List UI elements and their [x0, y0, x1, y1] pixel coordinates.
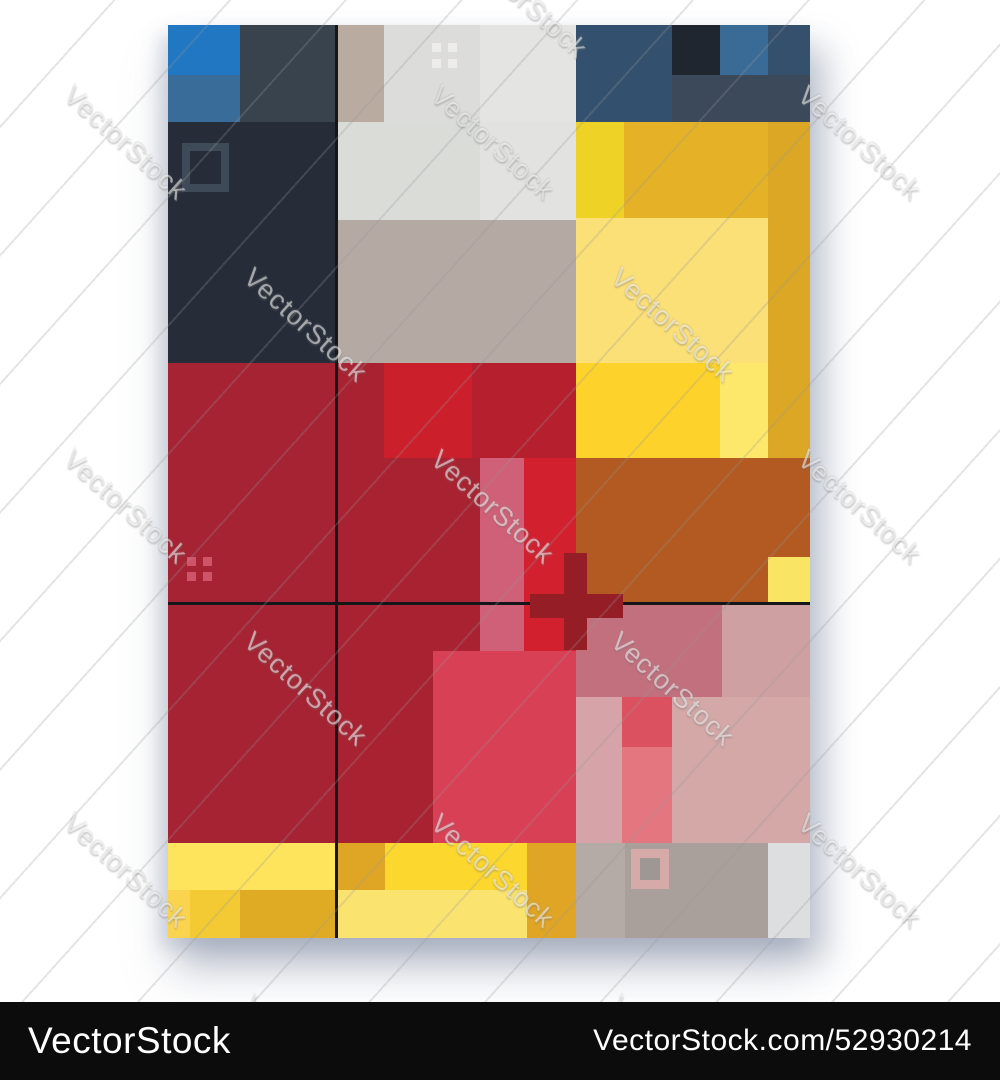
poster-block-top-right-navy-corner — [768, 25, 810, 75]
poster-block-br-salmon-column — [622, 747, 672, 843]
poster-block-bl-yellow-2 — [190, 890, 240, 938]
poster-block-top-right-slate-strip — [672, 75, 810, 122]
poster-block-yellow-square-right — [768, 557, 810, 602]
poster-block-red-dot — [187, 557, 196, 566]
poster-block-bl-yellow-strip — [168, 843, 336, 890]
footer-bar: VectorStock VectorStock.com/52930214 — [0, 1002, 1000, 1080]
poster-block-tr-yellow-pale — [720, 363, 768, 458]
poster-block-mid-red-column — [472, 363, 576, 458]
poster-block-bm-yellow-light — [336, 890, 527, 938]
poster-block-top-mid-gray-3 — [480, 122, 576, 220]
poster-block-top-mid-gray-1 — [384, 25, 480, 122]
poster-block-red-dot — [187, 572, 196, 581]
poster-block-bottom-left-red — [168, 602, 336, 843]
poster-block-pink-band — [480, 458, 524, 651]
footer-url: VectorStock.com/52930214 — [593, 1024, 972, 1058]
poster — [168, 25, 810, 938]
poster-block-grid-line-horizontal — [168, 602, 810, 605]
poster-block-br-gray-1 — [576, 843, 625, 938]
poster-block-br-redrose-square — [622, 697, 672, 747]
watermark-text: VectorStock — [791, 808, 927, 935]
poster-block-top-mid-sage — [336, 122, 480, 220]
poster-block-br-pink-column — [576, 697, 622, 843]
poster-block-br-dusty-pink — [672, 697, 810, 843]
footer-brand: VectorStock — [28, 1020, 231, 1062]
poster-block-square-frame-pink — [631, 849, 669, 889]
poster-block-cross-vertical — [564, 553, 587, 650]
poster-block-bm-amber-square — [336, 843, 385, 890]
poster-block-grid-line-vertical — [335, 25, 338, 938]
poster-block-red-dot — [203, 557, 212, 566]
poster-block-top-right-blue-square — [720, 25, 768, 75]
poster-block-white-dot — [448, 43, 457, 52]
poster-block-br-dusty-light — [722, 602, 810, 697]
poster-block-top-right-dark-square — [672, 25, 720, 75]
poster-block-red-dot — [203, 572, 212, 581]
poster-block-white-dot — [432, 59, 441, 68]
poster-block-top-left-blue-bright — [168, 25, 240, 75]
poster-block-tr-yellow-light — [576, 218, 768, 363]
watermark-text: VectorStock — [791, 444, 927, 571]
poster-block-bm-amber-column — [527, 843, 576, 938]
poster-block-top-mid-taupe — [336, 25, 384, 122]
poster-block-tr-amber-column — [768, 122, 810, 458]
poster-block-white-dot — [448, 59, 457, 68]
poster-block-square-frame-dark — [182, 143, 229, 192]
poster-block-mid-red-square — [384, 363, 472, 458]
poster-block-br-gray-light — [768, 843, 810, 938]
poster-block-tr-yellow-bright — [576, 122, 624, 218]
watermark-text: VectorStock — [791, 80, 927, 207]
poster-block-top-left-blue-medium — [168, 75, 240, 122]
poster-block-rose-block — [433, 651, 576, 843]
poster-block-bm-yellow-bright — [385, 843, 527, 890]
poster-block-mid-left-red — [168, 363, 336, 602]
poster-block-tr-amber — [624, 122, 768, 218]
poster-block-white-dot — [432, 43, 441, 52]
poster-block-bl-amber — [240, 890, 336, 938]
poster-block-top-mid-taupe-row — [336, 220, 576, 363]
poster-block-top-mid-gray-2 — [480, 25, 576, 122]
poster-block-bl-yellow-1 — [168, 890, 190, 938]
poster-block-tr-yellow-bright-2 — [576, 363, 720, 458]
